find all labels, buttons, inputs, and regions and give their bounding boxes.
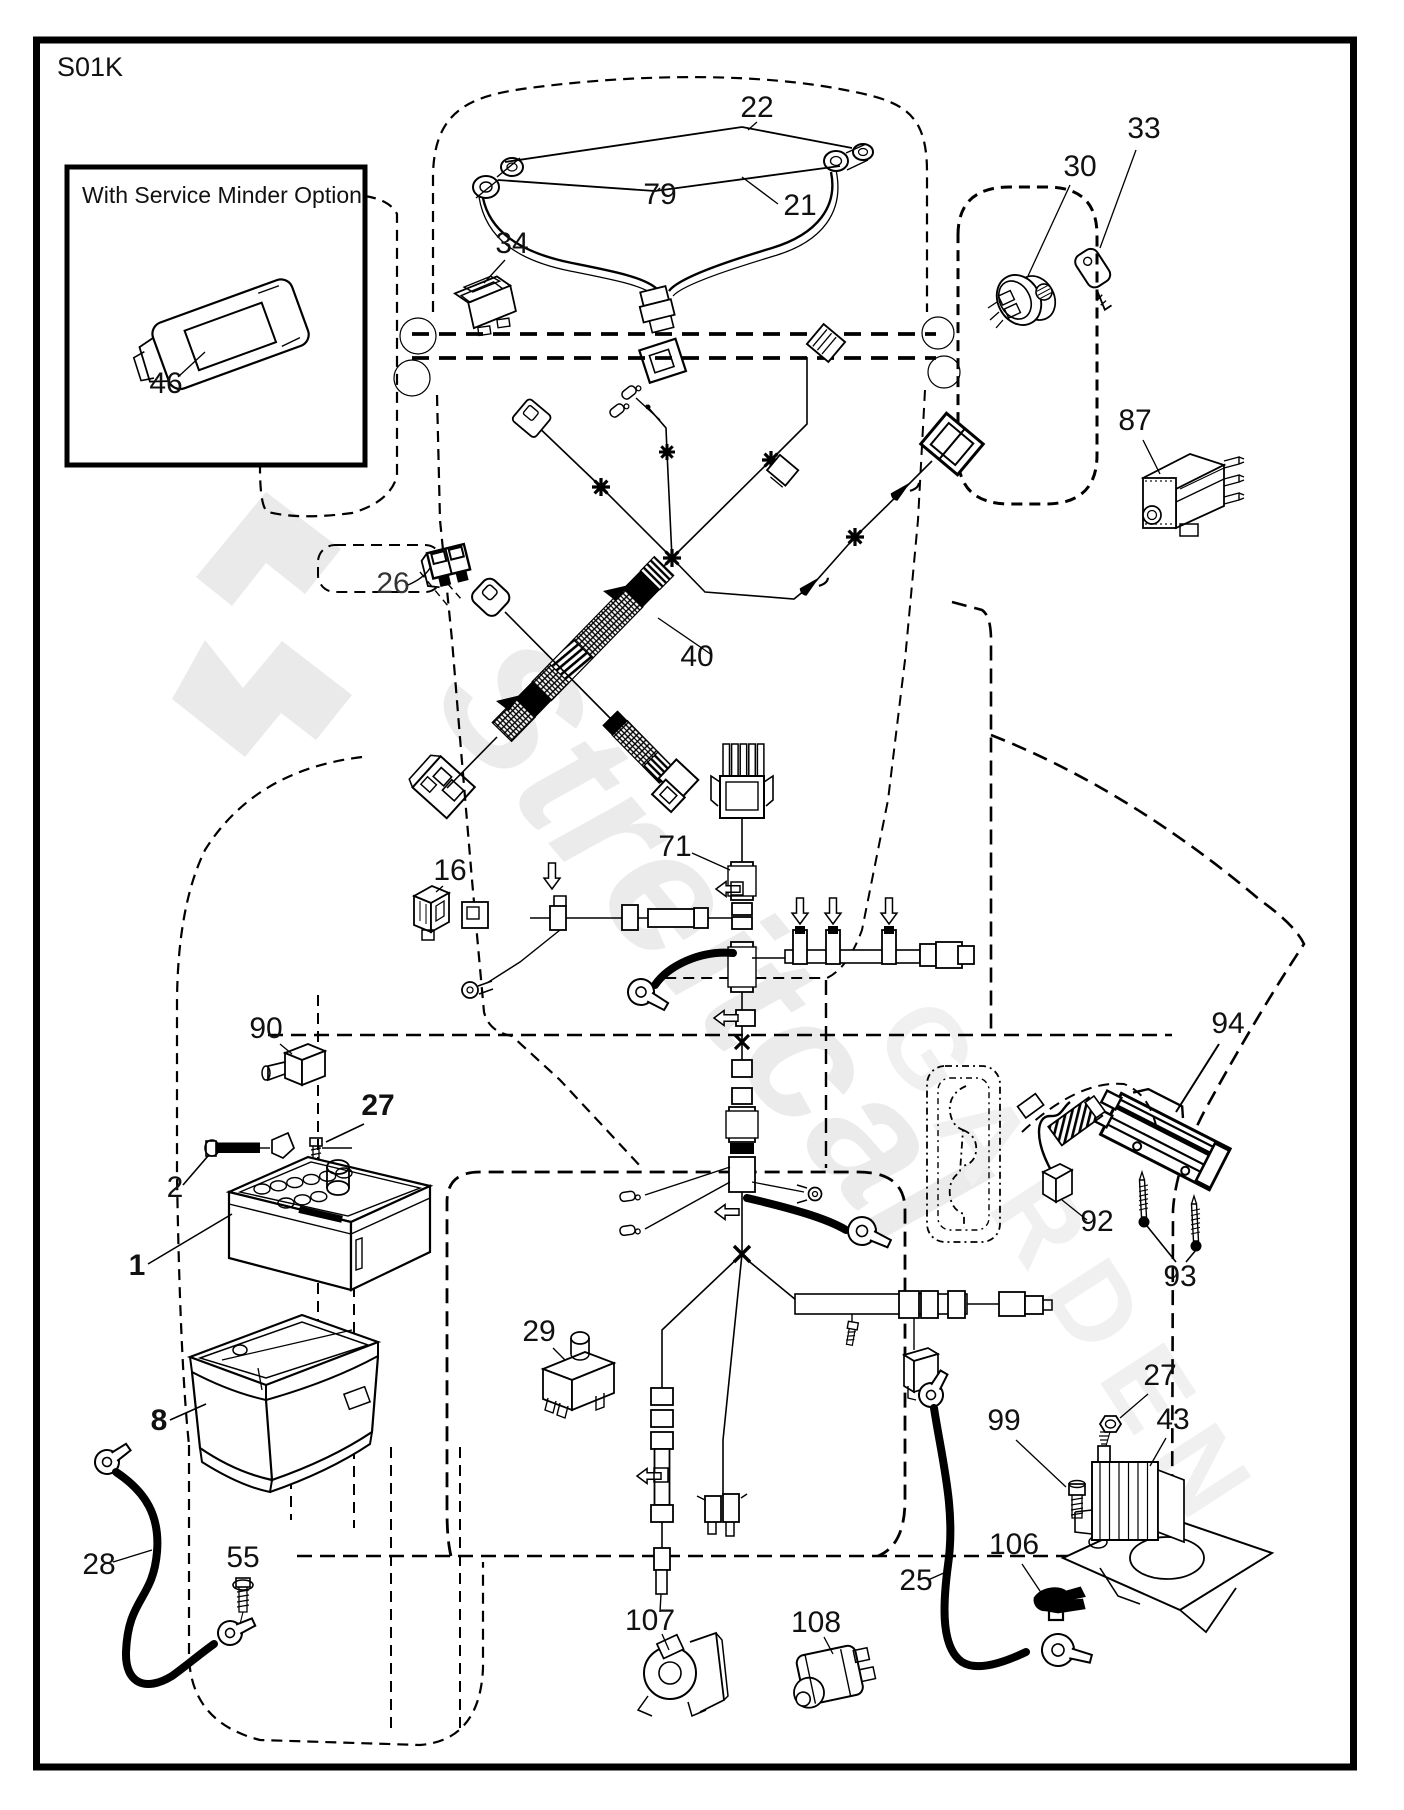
svg-text:22: 22 [740, 91, 773, 124]
svg-text:29: 29 [522, 1315, 555, 1348]
svg-text:34: 34 [495, 227, 528, 260]
svg-text:2: 2 [167, 1171, 184, 1204]
svg-text:90: 90 [249, 1012, 282, 1045]
svg-text:92: 92 [1080, 1205, 1113, 1238]
svg-text:27: 27 [1143, 1359, 1176, 1392]
svg-text:107: 107 [625, 1604, 675, 1637]
svg-text:87: 87 [1118, 404, 1151, 437]
svg-text:With Service Minder Option: With Service Minder Option [82, 182, 362, 208]
svg-text:16: 16 [433, 854, 466, 887]
svg-text:21: 21 [783, 189, 816, 222]
svg-text:30: 30 [1063, 150, 1096, 183]
svg-text:46: 46 [149, 367, 182, 400]
svg-text:94: 94 [1211, 1007, 1244, 1040]
svg-text:33: 33 [1127, 112, 1160, 145]
svg-text:1: 1 [129, 1249, 146, 1282]
svg-text:28: 28 [82, 1548, 115, 1581]
svg-text:43: 43 [1156, 1403, 1189, 1436]
svg-text:108: 108 [791, 1606, 841, 1639]
svg-text:55: 55 [226, 1541, 259, 1574]
svg-text:79: 79 [643, 178, 676, 211]
svg-text:8: 8 [151, 1404, 168, 1437]
svg-text:93: 93 [1163, 1260, 1196, 1293]
svg-text:25: 25 [899, 1564, 932, 1597]
svg-text:S01K: S01K [57, 52, 123, 82]
svg-text:27: 27 [361, 1089, 394, 1122]
svg-text:71: 71 [658, 830, 691, 863]
svg-text:26: 26 [376, 567, 409, 600]
svg-text:106: 106 [989, 1528, 1039, 1561]
svg-text:99: 99 [987, 1404, 1020, 1437]
